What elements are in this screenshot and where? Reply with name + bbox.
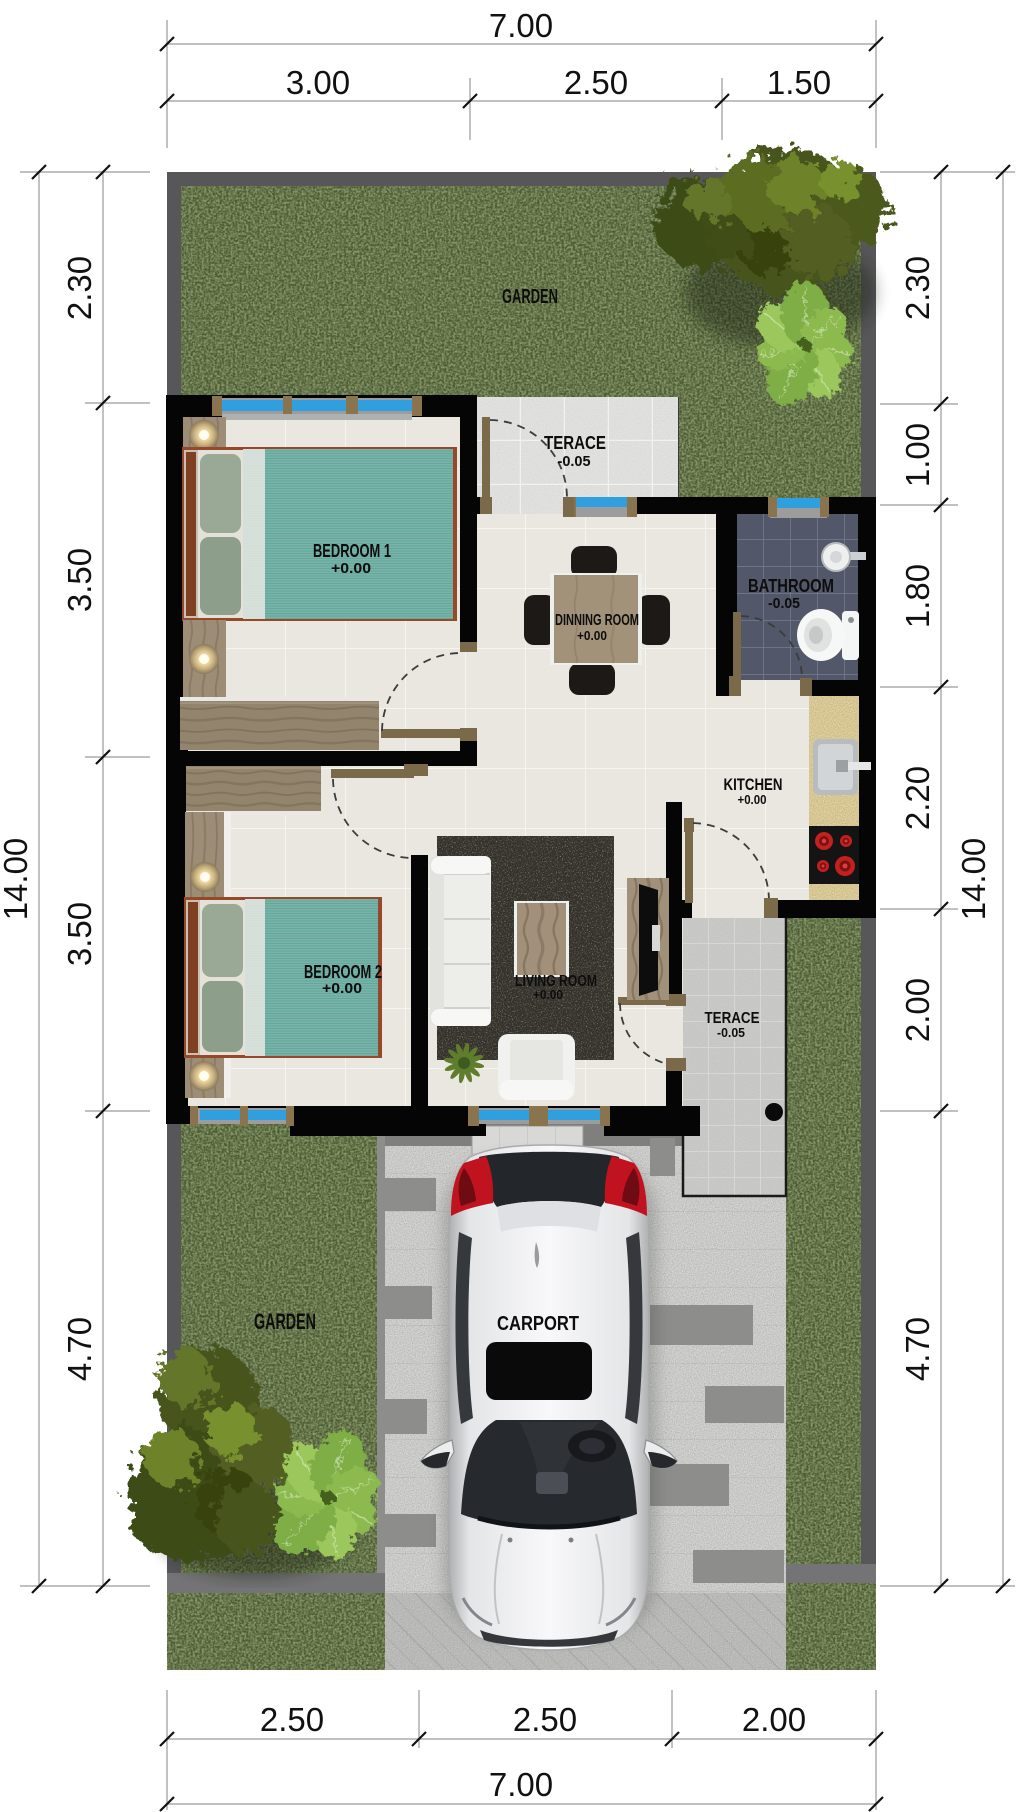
svg-text:GARDEN: GARDEN [502, 286, 558, 308]
svg-text:3.50: 3.50 [61, 548, 98, 612]
svg-text:BATHROOM: BATHROOM [748, 576, 834, 596]
svg-text:14.00: 14.00 [955, 838, 992, 921]
svg-text:2.00: 2.00 [742, 1701, 806, 1738]
svg-text:4.70: 4.70 [899, 1317, 936, 1381]
svg-text:2.30: 2.30 [899, 256, 936, 320]
svg-text:-0.05: -0.05 [768, 595, 800, 612]
svg-text:1.80: 1.80 [899, 564, 936, 628]
svg-text:2.50: 2.50 [564, 64, 628, 101]
svg-text:14.00: 14.00 [0, 838, 34, 921]
svg-text:TERACE: TERACE [544, 433, 606, 453]
svg-text:+0.00: +0.00 [738, 792, 767, 807]
svg-text:1.00: 1.00 [899, 423, 936, 487]
svg-text:BEDROOM 2: BEDROOM 2 [304, 962, 382, 982]
svg-text:3.50: 3.50 [61, 902, 98, 966]
svg-text:-0.05: -0.05 [717, 1025, 745, 1040]
svg-text:BEDROOM 1: BEDROOM 1 [313, 541, 391, 561]
svg-text:7.00: 7.00 [489, 1766, 553, 1803]
svg-text:2.50: 2.50 [513, 1701, 577, 1738]
svg-text:7.00: 7.00 [489, 7, 553, 44]
svg-text:3.00: 3.00 [286, 64, 350, 101]
svg-text:2.20: 2.20 [899, 766, 936, 830]
svg-text:-0.05: -0.05 [558, 453, 591, 470]
svg-text:DINNING ROOM: DINNING ROOM [555, 612, 639, 629]
svg-text:1.50: 1.50 [767, 64, 831, 101]
svg-text:+0.00: +0.00 [533, 987, 563, 1002]
svg-text:+0.00: +0.00 [331, 560, 371, 577]
svg-text:2.30: 2.30 [61, 256, 98, 320]
svg-text:2.00: 2.00 [899, 978, 936, 1042]
svg-text:GARDEN: GARDEN [254, 1309, 316, 1334]
svg-text:CARPORT: CARPORT [497, 1313, 579, 1335]
svg-text:2.50: 2.50 [260, 1701, 324, 1738]
svg-text:+0.00: +0.00 [577, 628, 607, 643]
svg-text:4.70: 4.70 [61, 1317, 98, 1381]
svg-text:+0.00: +0.00 [322, 980, 362, 997]
